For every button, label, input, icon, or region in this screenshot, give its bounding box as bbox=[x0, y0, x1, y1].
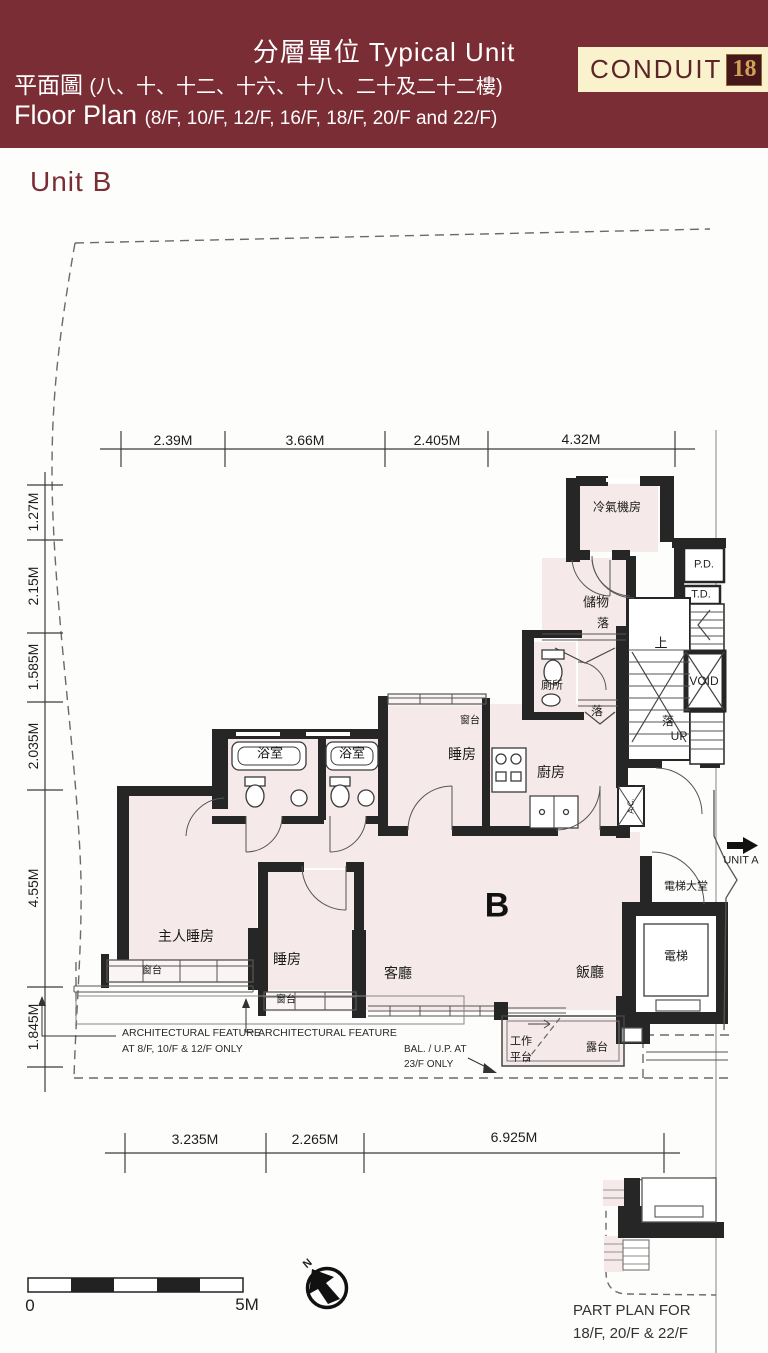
room-kitchen: 廚房 bbox=[537, 764, 565, 780]
room-dining: 飯廳 bbox=[576, 964, 604, 980]
label-bay-mid: 窗台 bbox=[460, 715, 480, 727]
header-banner: 分層單位 Typical Unit 平面圖 (八、十、十二、十六、十八、二十及二… bbox=[0, 0, 768, 148]
dim-left-6: 1.845M bbox=[25, 1004, 41, 1051]
room-lift-lobby: 電梯大堂 bbox=[664, 881, 708, 894]
room-balcony: 露台 bbox=[586, 1042, 608, 1055]
label-up: UP bbox=[671, 730, 688, 744]
dim-bottom-3: 6.925M bbox=[491, 1129, 538, 1145]
unit-b-label: B bbox=[485, 886, 510, 925]
room-bedroom2: 睡房 bbox=[273, 951, 301, 967]
room-bath2: 浴室 bbox=[339, 747, 365, 762]
label-drop-stair: 落 bbox=[662, 715, 674, 729]
scale-5m-label: 5M bbox=[235, 1295, 259, 1315]
dim-left-4: 2.035M bbox=[25, 723, 41, 770]
conduit18-logo: CONDUIT 18 bbox=[578, 47, 768, 92]
label-utility-1: 工作 bbox=[510, 1036, 532, 1049]
dim-top-2: 3.66M bbox=[286, 432, 325, 448]
room-toilet: 廁所 bbox=[541, 680, 563, 693]
north-arrow-icon bbox=[308, 1269, 347, 1308]
arch-feature-note-2: ARCHITECTURAL FEATURE bbox=[258, 1026, 397, 1042]
room-bedroom-mid: 睡房 bbox=[448, 746, 476, 762]
floor-plan-page: 分層單位 Typical Unit 平面圖 (八、十、十二、十六、十八、二十及二… bbox=[0, 0, 768, 1353]
label-drop-corridor: 落 bbox=[591, 705, 603, 719]
unit-a-label: UNIT A bbox=[723, 855, 758, 868]
scale-zero-label: 0 bbox=[25, 1296, 34, 1316]
balcony-note: BAL. / U.P. AT23/F ONLY bbox=[404, 1042, 466, 1072]
dim-left-1: 1.27M bbox=[25, 493, 41, 532]
label-ac-unit: A.C. bbox=[626, 798, 635, 814]
label-bay-master: 窗台 bbox=[142, 965, 162, 977]
logo-number: 18 bbox=[726, 54, 762, 86]
room-lift: 電梯 bbox=[664, 950, 688, 964]
room-bath1: 浴室 bbox=[257, 747, 283, 762]
scale-bar bbox=[28, 1278, 243, 1292]
part-plan-title: PART PLAN FOR18/F, 20/F & 22/F bbox=[573, 1300, 691, 1345]
arch-feature-note-1: ARCHITECTURAL FEATUREAT 8/F, 10/F & 12/F… bbox=[122, 1026, 261, 1058]
room-store: 儲物 bbox=[583, 596, 609, 611]
room-td: T.D. bbox=[691, 589, 711, 602]
unit-title: Unit B bbox=[30, 166, 112, 198]
room-master-bedroom: 主人睡房 bbox=[158, 928, 214, 944]
dim-bottom-2: 2.265M bbox=[292, 1131, 339, 1147]
page-subtitle-en: Floor Plan (8/F, 10/F, 12/F, 16/F, 18/F,… bbox=[14, 100, 497, 131]
room-pd: P.D. bbox=[694, 559, 714, 572]
room-ac-plant: 冷氣機房 bbox=[593, 501, 641, 515]
dim-top-1: 2.39M bbox=[154, 432, 193, 448]
page-subtitle-zh: 平面圖 (八、十、十二、十六、十八、二十及二十二樓) bbox=[14, 66, 503, 100]
dim-left-3: 1.585M bbox=[25, 644, 41, 691]
floor-plan-drawing bbox=[0, 0, 768, 1353]
dim-left-5: 4.55M bbox=[25, 869, 41, 908]
label-bay-bed2: 窗台 bbox=[276, 994, 296, 1006]
logo-wordmark: CONDUIT bbox=[590, 54, 722, 85]
dim-top-4: 4.32M bbox=[562, 431, 601, 447]
part-plan-drawing bbox=[603, 1178, 724, 1295]
unit-a-arrow-icon bbox=[727, 837, 758, 854]
dim-left-2: 2.15M bbox=[25, 567, 41, 606]
dim-top-3: 2.405M bbox=[414, 432, 461, 448]
room-void: VOID bbox=[689, 675, 718, 689]
label-utility-2: 平台 bbox=[510, 1052, 532, 1065]
room-living: 客廳 bbox=[384, 965, 412, 981]
label-drop-store: 落 bbox=[597, 617, 609, 631]
label-up-stair: 上 bbox=[654, 637, 667, 652]
dim-bottom-1: 3.235M bbox=[172, 1131, 219, 1147]
